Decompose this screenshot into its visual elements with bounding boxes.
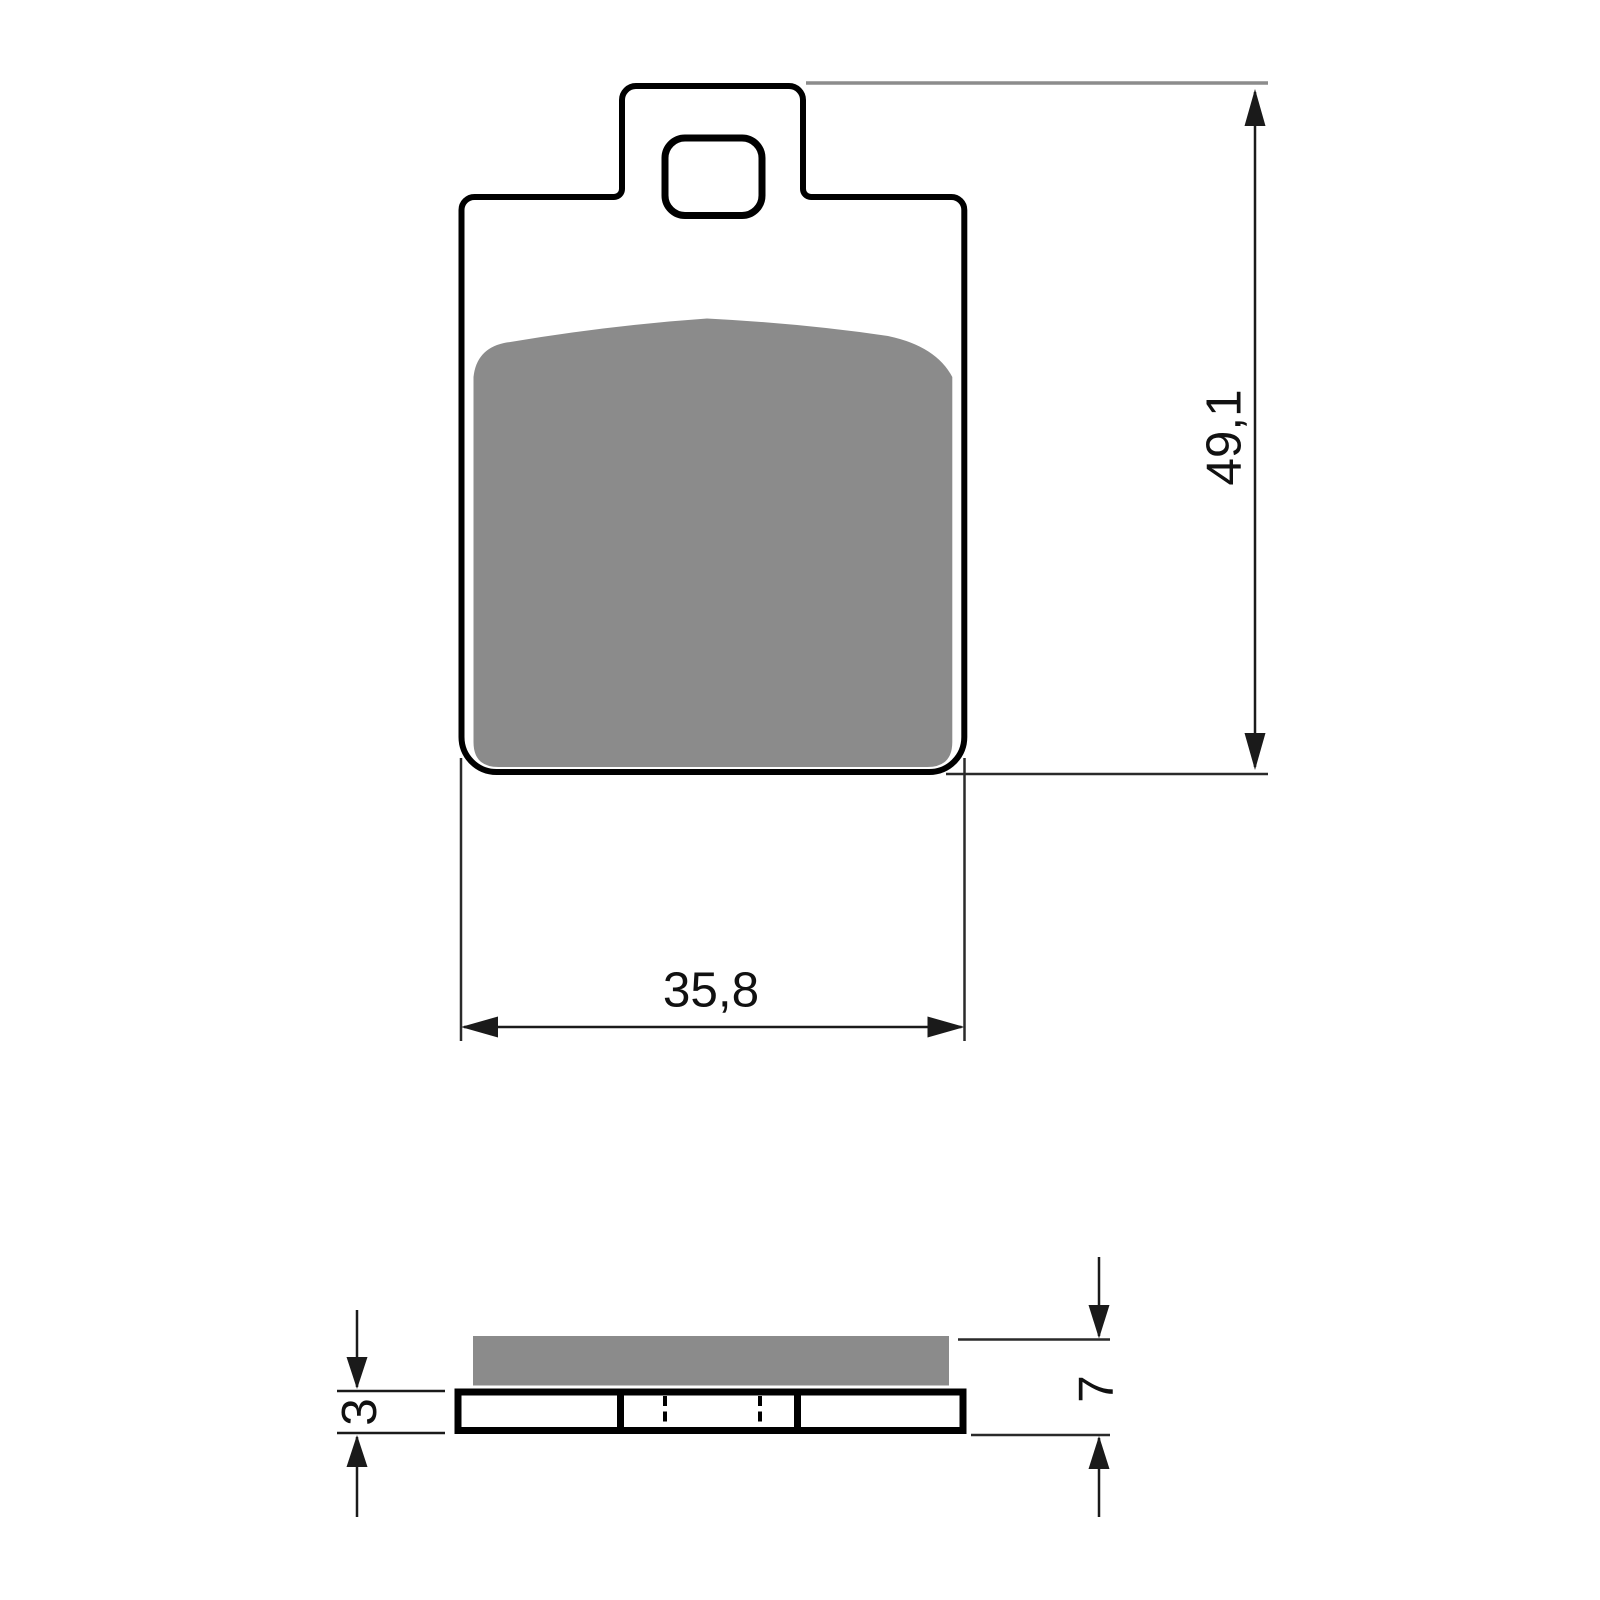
svg-text:3: 3	[332, 1398, 387, 1426]
svg-text:7: 7	[1069, 1375, 1124, 1403]
svg-text:35,8: 35,8	[663, 963, 759, 1018]
svg-text:49,1: 49,1	[1197, 389, 1252, 485]
